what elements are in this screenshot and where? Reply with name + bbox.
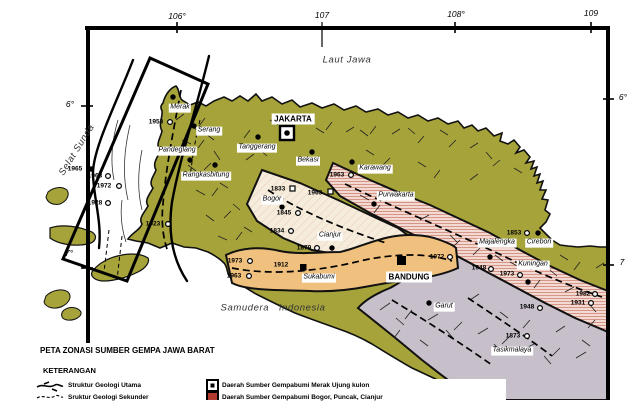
quake-year-1853: 1853	[507, 229, 521, 236]
legend-heading: KETERANGAN	[43, 366, 96, 375]
city-label-tasikmalaya: Tasikmalaya	[491, 347, 533, 356]
quake-year-1963-banten: 1963	[88, 172, 102, 179]
laut-jawa-label: Laut Jawa	[323, 54, 372, 65]
long-label-109: 109	[584, 9, 598, 18]
city-label-jakarta: JAKARTA	[272, 114, 315, 125]
map-title: PETA ZONASI SUMBER GEMPA JAWA BARAT	[40, 346, 215, 356]
kuningan-dot	[525, 279, 530, 284]
quake-year-1923: 1923	[146, 220, 160, 227]
map-canvas: 106° 107 108° 109 6° 7° 6° 7 Laut Jawa S…	[0, 0, 640, 400]
purwakarta-dot	[371, 201, 376, 206]
legend-label-zone-merak: Daerah Sumber Gempabumi Merak Ujung kulo…	[222, 382, 369, 390]
legend-merak-zone-symbol-inner	[211, 384, 215, 388]
quake-year-1948-east: 1948	[520, 303, 534, 310]
quake-year-1963-west: 1963	[308, 189, 322, 196]
quake-year-1972-bandung: 1972	[430, 253, 444, 260]
rangkasbitung-dot	[212, 162, 217, 167]
cianjur-dot	[329, 245, 334, 250]
long-label-106: 106°	[168, 12, 186, 21]
samudera-indonesia-label: Samudera Indonesia	[221, 302, 326, 313]
merak-dot	[170, 94, 175, 99]
quake-year-1953: 1953	[149, 118, 163, 125]
city-label-pandeglang: Pandeglang	[157, 147, 197, 156]
quake-year-1973-sukabumi: 1973	[228, 257, 242, 264]
quake-year-1879: 1879	[297, 244, 311, 251]
quake-year-1982: 1982	[576, 290, 590, 297]
jakarta-marker	[280, 126, 294, 140]
city-label-sukabumi: Sukabumi	[302, 274, 336, 283]
karawang-dot	[349, 159, 354, 164]
quake-year-1963-coast: 1963	[227, 272, 241, 279]
city-label-merak: Merak	[169, 104, 191, 113]
city-label-purwakarta: Purwakarta	[377, 192, 415, 201]
bekasi-dot	[309, 149, 314, 154]
quake-year-1873: 1873	[506, 332, 520, 339]
lat-label-right-6: 6°	[619, 93, 627, 102]
pandeglang-dot	[187, 157, 192, 162]
city-label-cirebon: Cirebon	[525, 239, 553, 248]
lat-label-left-7: 7°	[65, 249, 73, 258]
long-label-108: 108°	[447, 10, 465, 19]
city-label-serang: Serang	[196, 127, 222, 136]
legend-label-struktur-utama: Struktur Geologi Utama	[68, 382, 141, 390]
sukabumi-marker	[300, 264, 307, 271]
majalengka-dot	[487, 254, 492, 259]
tanggerang-dot	[255, 134, 260, 139]
quake-year-1963-karawang: 1963	[330, 171, 344, 178]
quake-year-1928: 1928	[88, 199, 102, 206]
city-label-bandung: BANDUNG	[386, 272, 432, 283]
quake-year-1912: 1912	[274, 261, 288, 268]
quake-year-1834: 1834	[270, 227, 284, 234]
quake-year-1845: 1845	[277, 209, 291, 216]
city-label-rangkasbitung: Rangkasbitung	[181, 172, 231, 181]
garut-dot	[426, 300, 431, 305]
quake-year-1973-kuningan: 1973	[500, 270, 514, 277]
city-label-bogor: Bogor	[261, 196, 283, 205]
city-label-kuningan: Kuningan	[517, 261, 550, 270]
city-label-majalengka: Majalengka	[478, 239, 517, 248]
city-label-karawang: Karawang	[358, 165, 393, 174]
lat-label-left-6: 6°	[66, 100, 74, 109]
city-label-tanggerang: Tanggerang	[237, 144, 277, 153]
long-label-107: 107	[315, 11, 329, 20]
legend-label-zone-bogor: Daerah Sumber Gempabumi Bogor, Puncak, C…	[222, 394, 383, 402]
quake-year-1931: 1931	[571, 299, 585, 306]
city-label-bekasi: Bekasi	[296, 157, 320, 166]
legend-label-struktur-sekunder: Sruktur Geologi Sekunder	[68, 394, 149, 402]
lat-label-right-7: 7	[620, 258, 625, 267]
cirebon-dot	[535, 230, 540, 235]
city-label-cianjur: Cianjur	[317, 232, 342, 241]
bandung-marker	[397, 256, 406, 265]
legend-bogor-zone-symbol	[207, 392, 218, 400]
city-label-garut: Garut	[434, 303, 455, 312]
quake-year-1833: 1833	[271, 185, 285, 192]
quake-year-1948-majalengka: 1948	[472, 264, 486, 271]
quake-year-1965: 1965	[68, 165, 82, 172]
quake-year-1972-banten: 1972	[97, 182, 111, 189]
